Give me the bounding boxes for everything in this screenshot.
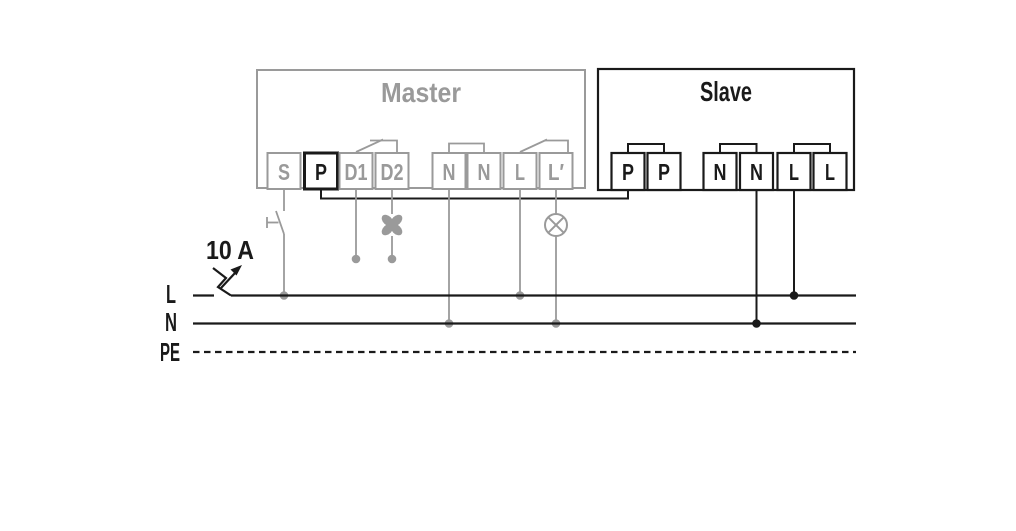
wire-l-prime-with-lamp <box>545 189 567 328</box>
wire-master-l-to-line <box>516 189 525 300</box>
slave-terminal-n2: N <box>740 153 773 190</box>
breaker-arrow-head <box>231 265 243 276</box>
terminal-label: N <box>443 159 456 185</box>
wire-d1-stub <box>352 189 361 263</box>
master-title: Master <box>381 77 461 108</box>
terminal-label: N <box>478 159 491 185</box>
slave-terminal-l2: L <box>814 153 847 190</box>
supply-rails: L N PE 10 A <box>160 235 856 367</box>
earth-rail-label: PE <box>160 337 180 367</box>
line-rail-label: L <box>166 279 176 309</box>
master-terminal-d1: D1 <box>340 153 373 189</box>
terminal-label: L <box>789 159 799 185</box>
wire-master-n-to-neutral <box>445 189 454 328</box>
wire-slave-n-to-neutral <box>752 190 761 328</box>
wire-d2-with-fan <box>379 189 404 263</box>
terminal-label: L <box>825 159 835 185</box>
fan-icon <box>379 212 404 237</box>
master-terminal-d2: D2 <box>376 153 409 189</box>
contact-bracket <box>370 141 397 153</box>
neutral-rail-label: N <box>165 307 177 337</box>
slave-terminal-n1: N <box>704 153 737 190</box>
terminal-label: P <box>622 159 634 185</box>
circuit-breaker-icon <box>213 265 242 296</box>
terminal-label: N <box>714 159 727 185</box>
slave-device: Slave P P N N L L <box>598 69 854 190</box>
breaker-rating-label: 10 A <box>206 235 254 265</box>
wire-slave-l-to-line <box>790 190 799 300</box>
contact-blade <box>520 140 547 153</box>
wiring <box>267 189 798 328</box>
terminal-label: P <box>658 159 670 185</box>
terminal-label: L′ <box>548 159 564 185</box>
terminal-label: L <box>515 159 525 185</box>
wiring-diagram: Master S P D1 D2 <box>0 0 1016 531</box>
wire-end-dot <box>352 255 361 264</box>
terminal-label: D2 <box>381 159 404 185</box>
master-terminal-n1: N <box>433 153 466 189</box>
master-terminal-s: S <box>268 153 301 189</box>
slave-title: Slave <box>700 76 752 107</box>
terminal-label: N <box>750 159 763 185</box>
lamp-icon <box>545 214 567 236</box>
master-terminal-l-prime: L′ <box>540 153 573 189</box>
master-terminal-l: L <box>504 153 537 189</box>
relay-contact-l-l-icon <box>520 140 568 153</box>
push-button-icon <box>267 211 284 234</box>
contact-bracket <box>545 141 568 153</box>
relay-contact-d1-d2-icon <box>356 140 397 153</box>
slave-terminal-l1: L <box>778 153 811 190</box>
terminal-label: P <box>315 159 327 185</box>
slave-terminal-p2: P <box>648 153 681 190</box>
wiring-diagram-canvas: Master S P D1 D2 <box>0 0 1016 531</box>
wire-s-with-push-button <box>267 189 288 300</box>
terminal-label: S <box>278 159 290 185</box>
slave-terminal-p1: P <box>612 153 645 190</box>
master-terminal-n2: N <box>468 153 501 189</box>
wire-end-dot <box>388 255 397 264</box>
wire-master-p-to-slave-p <box>321 189 628 199</box>
terminal-label: D1 <box>345 159 368 185</box>
master-terminal-p: P <box>305 153 338 189</box>
master-device: Master S P D1 D2 <box>257 70 585 189</box>
